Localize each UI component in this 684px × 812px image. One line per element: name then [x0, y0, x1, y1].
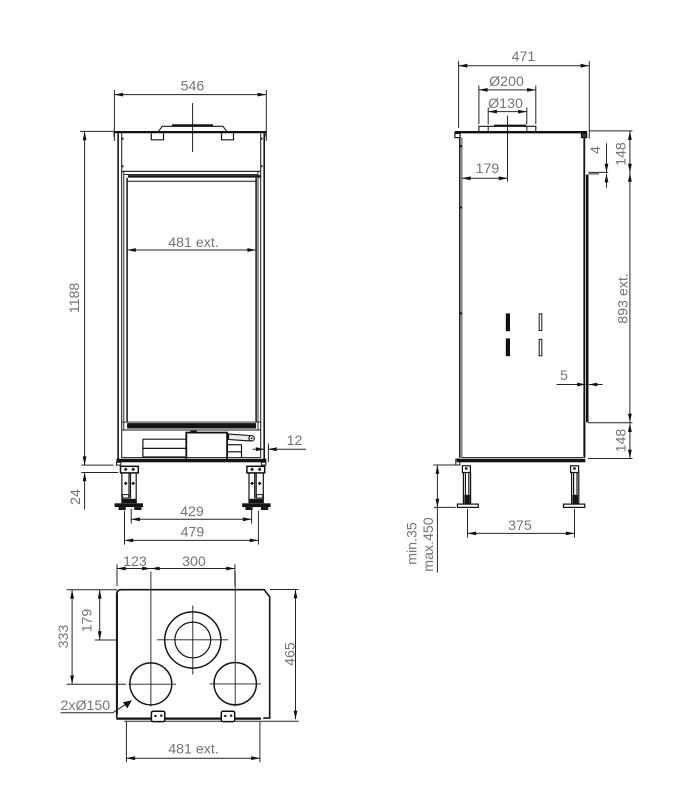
svg-text:5: 5: [560, 368, 568, 384]
svg-text:148: 148: [614, 429, 630, 453]
svg-text:893 ext.: 893 ext.: [616, 273, 632, 323]
svg-text:481 ext.: 481 ext.: [168, 235, 218, 251]
svg-text:300: 300: [182, 554, 206, 570]
svg-text:546: 546: [181, 79, 205, 95]
svg-text:max.450: max.450: [421, 517, 437, 572]
svg-text:2xØ150: 2xØ150: [61, 698, 111, 714]
svg-text:Ø130: Ø130: [488, 96, 523, 112]
svg-text:148: 148: [614, 142, 630, 166]
svg-text:4: 4: [588, 146, 604, 154]
svg-text:465: 465: [283, 642, 299, 666]
svg-text:Ø200: Ø200: [489, 74, 524, 90]
svg-text:24: 24: [68, 489, 84, 505]
svg-text:12: 12: [287, 433, 303, 449]
svg-text:179: 179: [476, 161, 500, 177]
svg-text:333: 333: [56, 625, 72, 649]
svg-text:481 ext.: 481 ext.: [168, 742, 218, 758]
svg-text:479: 479: [181, 524, 205, 540]
svg-text:429: 429: [180, 504, 204, 520]
svg-text:1188: 1188: [67, 283, 83, 314]
svg-text:min.35: min.35: [405, 522, 421, 565]
svg-text:471: 471: [512, 49, 536, 65]
svg-text:375: 375: [508, 518, 532, 534]
svg-text:179: 179: [80, 609, 96, 633]
